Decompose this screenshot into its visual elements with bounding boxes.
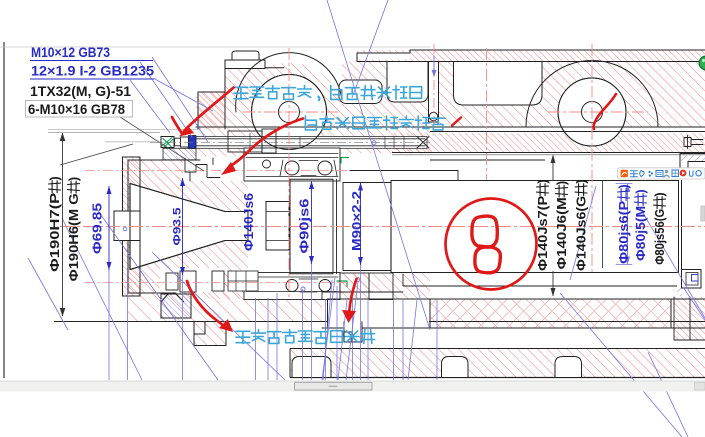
svg-text:Φ80j5(M: Φ80j5(M: [633, 206, 648, 261]
svg-text:): ): [66, 177, 81, 181]
svg-text:Φ190H7(P: Φ190H7(P: [47, 192, 62, 271]
svg-text:Φ93.5: Φ93.5: [172, 208, 184, 246]
svg-text:M10×12 GB73: M10×12 GB73: [31, 45, 110, 60]
svg-text:12×1.9 I-2 GB1235: 12×1.9 I-2 GB1235: [31, 64, 155, 79]
svg-text:): ): [535, 179, 550, 183]
svg-text:Φ140Js6(G: Φ140Js6(G: [574, 196, 589, 271]
svg-text:Φ80js6(P: Φ80js6(P: [616, 200, 631, 263]
svg-text:Φ90js6: Φ90js6: [297, 199, 312, 254]
svg-text:): ): [633, 189, 648, 193]
svg-text:Φ140J6(M: Φ140J6(M: [554, 197, 569, 269]
svg-text:1TX32(M, G)-51: 1TX32(M, G)-51: [30, 84, 132, 99]
svg-text:): ): [616, 184, 631, 188]
svg-text:): ): [47, 176, 62, 180]
svg-text:): ): [574, 179, 589, 183]
svg-text:): ): [652, 192, 667, 196]
svg-text:Φ140Js7(P: Φ140Js7(P: [535, 195, 550, 270]
svg-text:Φ190H6(M G: Φ190H6(M G: [66, 193, 81, 281]
svg-text:Φ80js56(G: Φ80js56(G: [652, 209, 667, 265]
svg-text:Φ140Js6: Φ140Js6: [241, 193, 256, 251]
svg-text:M90×2-2: M90×2-2: [349, 191, 364, 251]
svg-text:6-M10×16 GB78: 6-M10×16 GB78: [28, 102, 125, 117]
svg-text:Φ69.85: Φ69.85: [90, 203, 105, 254]
svg-text:): ): [554, 181, 569, 185]
